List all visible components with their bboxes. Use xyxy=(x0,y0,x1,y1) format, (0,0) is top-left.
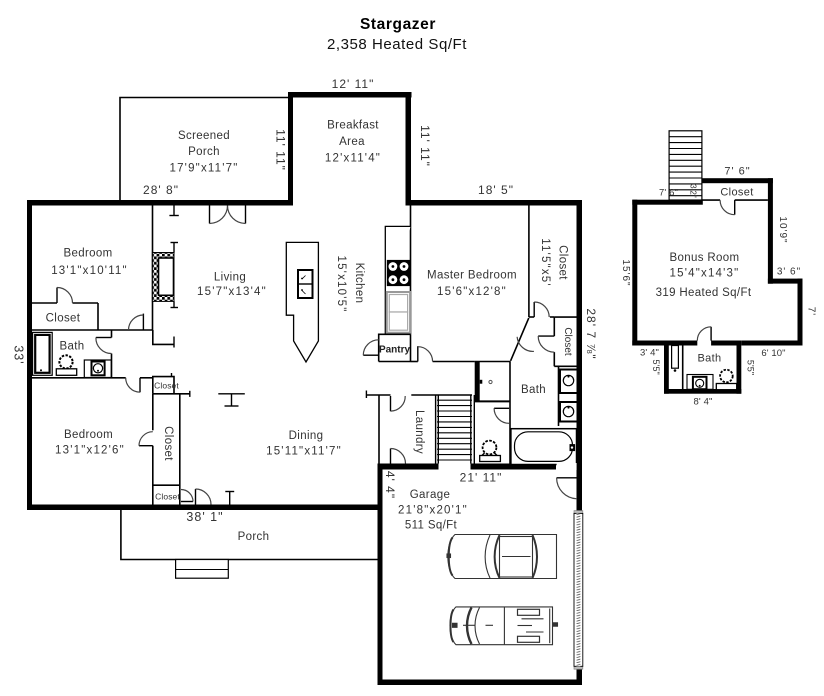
svg-text:13'1"x10'11": 13'1"x10'11" xyxy=(51,265,128,277)
svg-text:Breakfast: Breakfast xyxy=(327,120,379,132)
svg-text:Pantry: Pantry xyxy=(379,345,411,356)
svg-text:Bath: Bath xyxy=(521,384,546,396)
svg-text:Bedroom: Bedroom xyxy=(63,248,112,260)
svg-text:Closet: Closet xyxy=(162,426,174,461)
svg-text:17'9"x11'7": 17'9"x11'7" xyxy=(169,163,238,175)
svg-text:Closet: Closet xyxy=(562,327,573,356)
svg-text:38' 1": 38' 1" xyxy=(186,510,223,524)
svg-text:15'4"x14'3": 15'4"x14'3" xyxy=(670,268,740,280)
svg-text:4' 4": 4' 4" xyxy=(383,471,397,499)
svg-text:Master Bedroom: Master Bedroom xyxy=(427,270,517,282)
svg-text:12' 11": 12' 11" xyxy=(332,77,375,91)
svg-text:8' 4": 8' 4" xyxy=(694,397,713,408)
svg-text:Garage: Garage xyxy=(410,489,450,501)
svg-text:5'5": 5'5" xyxy=(745,360,755,375)
svg-text:3' 6": 3' 6" xyxy=(777,267,801,278)
svg-text:Dining: Dining xyxy=(289,430,324,442)
svg-text:Closet: Closet xyxy=(720,187,753,199)
svg-text:15'6": 15'6" xyxy=(620,259,631,286)
svg-text:Bonus Room: Bonus Room xyxy=(670,252,740,264)
svg-text:Porch: Porch xyxy=(238,531,270,543)
svg-text:11' 11": 11' 11" xyxy=(273,129,287,171)
svg-text:Porch: Porch xyxy=(188,146,220,158)
svg-text:2,358 Heated Sq/Ft: 2,358 Heated Sq/Ft xyxy=(327,36,467,53)
svg-text:7': 7' xyxy=(806,307,817,316)
svg-text:15'6"x12'8": 15'6"x12'8" xyxy=(437,286,507,298)
svg-text:21' 11": 21' 11" xyxy=(460,471,503,485)
svg-text:Bath: Bath xyxy=(59,341,84,353)
svg-text:Area: Area xyxy=(339,136,365,148)
svg-text:319 Heated Sq/Ft: 319 Heated Sq/Ft xyxy=(656,287,752,299)
svg-text:3'2": 3'2" xyxy=(689,184,698,198)
svg-text:Laundry: Laundry xyxy=(413,410,425,454)
svg-text:3' 4": 3' 4" xyxy=(640,348,659,359)
svg-text:10'9": 10'9" xyxy=(777,216,788,243)
svg-text:6' 10": 6' 10" xyxy=(761,348,785,359)
svg-text:Bath: Bath xyxy=(697,353,721,365)
svg-text:15'7"x13'4": 15'7"x13'4" xyxy=(197,286,267,298)
svg-text:11' 11": 11' 11" xyxy=(418,125,432,167)
svg-text:7' 6": 7' 6" xyxy=(659,188,678,199)
svg-text:21'8"x20'1": 21'8"x20'1" xyxy=(398,505,468,517)
svg-text:Screened: Screened xyxy=(178,130,230,142)
svg-text:15'11"x11'7": 15'11"x11'7" xyxy=(266,446,342,458)
svg-text:Closet: Closet xyxy=(557,245,569,280)
svg-text:Kitchen: Kitchen xyxy=(353,263,365,304)
svg-text:Closet: Closet xyxy=(155,492,180,502)
svg-text:7' 6": 7' 6" xyxy=(724,166,750,178)
svg-text:33': 33' xyxy=(11,345,25,364)
svg-text:28' 8": 28' 8" xyxy=(143,183,179,197)
svg-text:Closet: Closet xyxy=(46,313,81,325)
svg-text:511 Sq/Ft: 511 Sq/Ft xyxy=(405,520,458,532)
svg-text:Bedroom: Bedroom xyxy=(64,429,113,441)
svg-text:12'x11'4": 12'x11'4" xyxy=(325,153,381,165)
svg-text:28' 7 ⅞": 28' 7 ⅞" xyxy=(584,308,598,359)
svg-text:Stargazer: Stargazer xyxy=(360,16,436,33)
svg-text:11'5"x5': 11'5"x5' xyxy=(539,238,551,287)
svg-text:5'5": 5'5" xyxy=(651,360,661,375)
svg-text:Closet: Closet xyxy=(154,381,179,391)
svg-text:18' 5": 18' 5" xyxy=(478,183,514,197)
svg-text:13'1"x12'6": 13'1"x12'6" xyxy=(55,445,125,457)
svg-text:15'x10'5": 15'x10'5" xyxy=(335,255,347,312)
svg-text:Living: Living xyxy=(214,272,246,284)
